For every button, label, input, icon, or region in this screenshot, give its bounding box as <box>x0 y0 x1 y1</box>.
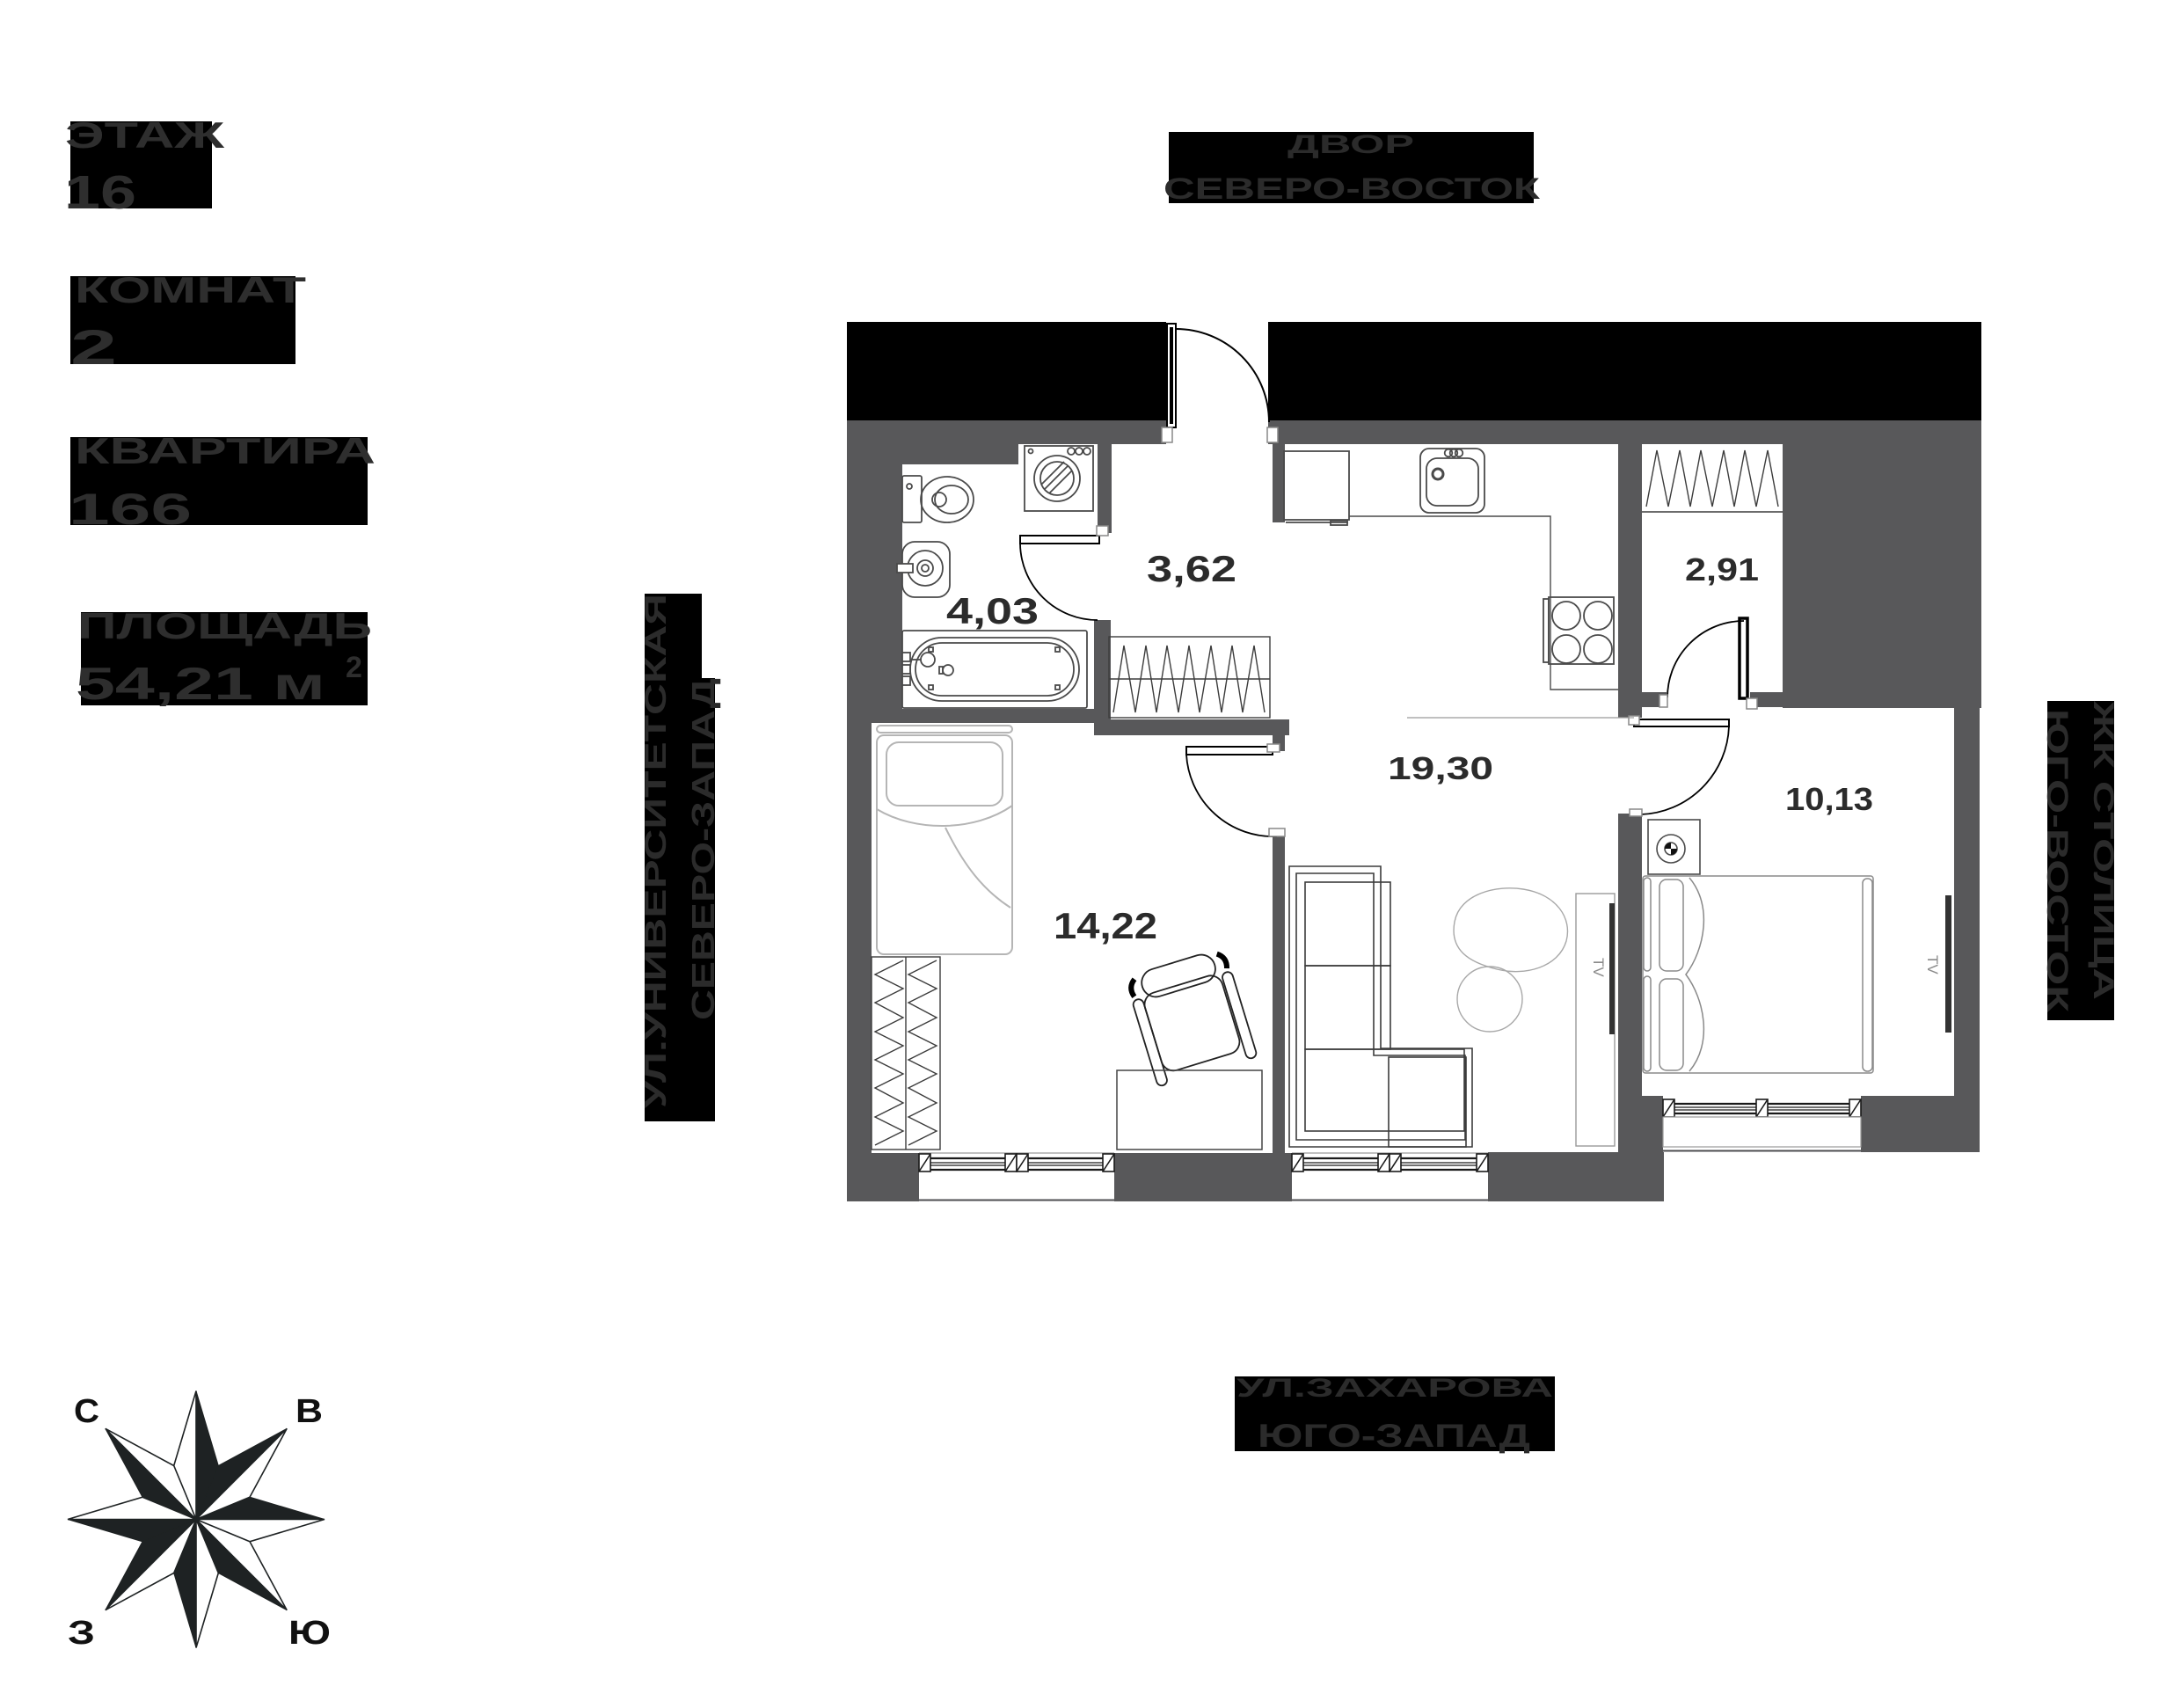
svg-text:2,91: 2,91 <box>1685 551 1759 588</box>
svg-text:УЛ.ЗАХАРОВА: УЛ.ЗАХАРОВА <box>1236 1374 1553 1403</box>
svg-text:КОМНАТ: КОМНАТ <box>75 269 307 310</box>
svg-text:С: С <box>74 1393 99 1430</box>
svg-text:166: 166 <box>69 485 192 534</box>
svg-text:Ю: Ю <box>288 1615 331 1652</box>
svg-text:3,62: 3,62 <box>1147 548 1236 589</box>
svg-text:TV: TV <box>1924 955 1941 974</box>
svg-text:ЖК СТОЛИЦА: ЖК СТОЛИЦА <box>2088 699 2119 1000</box>
svg-text:16: 16 <box>64 166 136 219</box>
svg-text:СЕВЕРО-ЗАПАД: СЕВЕРО-ЗАПАД <box>685 678 721 1020</box>
svg-text:СЕВЕРО-ВОСТОК: СЕВЕРО-ВОСТОК <box>1163 172 1540 206</box>
svg-text:В: В <box>295 1393 323 1430</box>
svg-text:ПЛОЩАДЬ: ПЛОЩАДЬ <box>77 605 372 646</box>
svg-text:2: 2 <box>346 651 362 684</box>
svg-text:54,21 м: 54,21 м <box>76 659 325 710</box>
svg-text:4,03: 4,03 <box>946 590 1039 631</box>
svg-text:14,22: 14,22 <box>1054 905 1157 946</box>
svg-text:З: З <box>68 1615 95 1652</box>
svg-text:19,30: 19,30 <box>1388 750 1493 786</box>
svg-text:ЭТАЖ: ЭТАЖ <box>65 114 226 156</box>
svg-text:ДВОР: ДВОР <box>1287 130 1414 159</box>
svg-text:УЛ.УНИВЕРСИТЕТСКАЯ: УЛ.УНИВЕРСИТЕТСКАЯ <box>639 594 673 1108</box>
svg-text:ЮГО-ВОСТОК: ЮГО-ВОСТОК <box>2040 709 2074 1012</box>
svg-text:ЮГО-ЗАПАД: ЮГО-ЗАПАД <box>1258 1418 1530 1454</box>
svg-text:2: 2 <box>70 319 117 375</box>
svg-text:10,13: 10,13 <box>1785 781 1873 817</box>
svg-text:TV: TV <box>1590 958 1607 977</box>
svg-text:КВАРТИРА: КВАРТИРА <box>75 430 376 471</box>
